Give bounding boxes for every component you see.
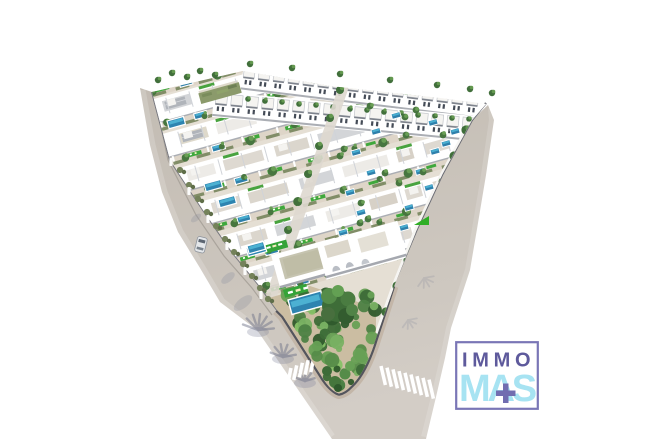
svg-text:MAS: MAS bbox=[459, 368, 536, 410]
